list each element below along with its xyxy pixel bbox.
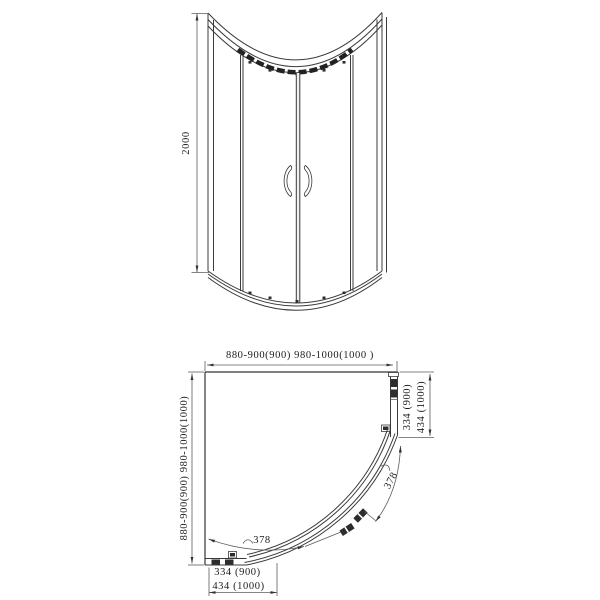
bottom-wall-profile bbox=[205, 552, 247, 566]
front-height-dimension-label: 2000 bbox=[182, 131, 193, 154]
bottom-door-arc-dimension bbox=[208, 532, 341, 550]
bottom-door-arc-length-label: 378 bbox=[253, 536, 271, 547]
plan-bottom-offset-334-label: 334 (900) bbox=[214, 567, 261, 578]
right-door-handle bbox=[304, 166, 312, 197]
plan-left-height-dimension-label: 880-900(900) 980-1000(1000) bbox=[180, 396, 191, 541]
drawing-canvas: 2000 880-900(900) 980-1000(1000 ) 880-90… bbox=[0, 0, 600, 600]
plan-left-height-dimension bbox=[188, 372, 204, 565]
front-height-dimension bbox=[192, 14, 210, 273]
plan-right-offset-434-label: 434 (1000) bbox=[416, 380, 427, 432]
plan-top-width-dimension bbox=[205, 361, 397, 371]
plan-right-offset-334-label: 334 (900) bbox=[403, 383, 414, 430]
arc-length-symbol bbox=[243, 540, 253, 544]
plan-top-width-dimension-label: 880-900(900) 980-1000(1000 ) bbox=[226, 351, 374, 362]
plan-bottom-offset-434-label: 434 (1000) bbox=[212, 581, 264, 592]
shower-enclosure-line-drawing bbox=[0, 0, 600, 600]
right-wall-profile bbox=[382, 372, 399, 437]
left-door-handle bbox=[284, 166, 292, 197]
front-elevation bbox=[192, 13, 387, 311]
top-rail-hatch bbox=[238, 50, 352, 73]
